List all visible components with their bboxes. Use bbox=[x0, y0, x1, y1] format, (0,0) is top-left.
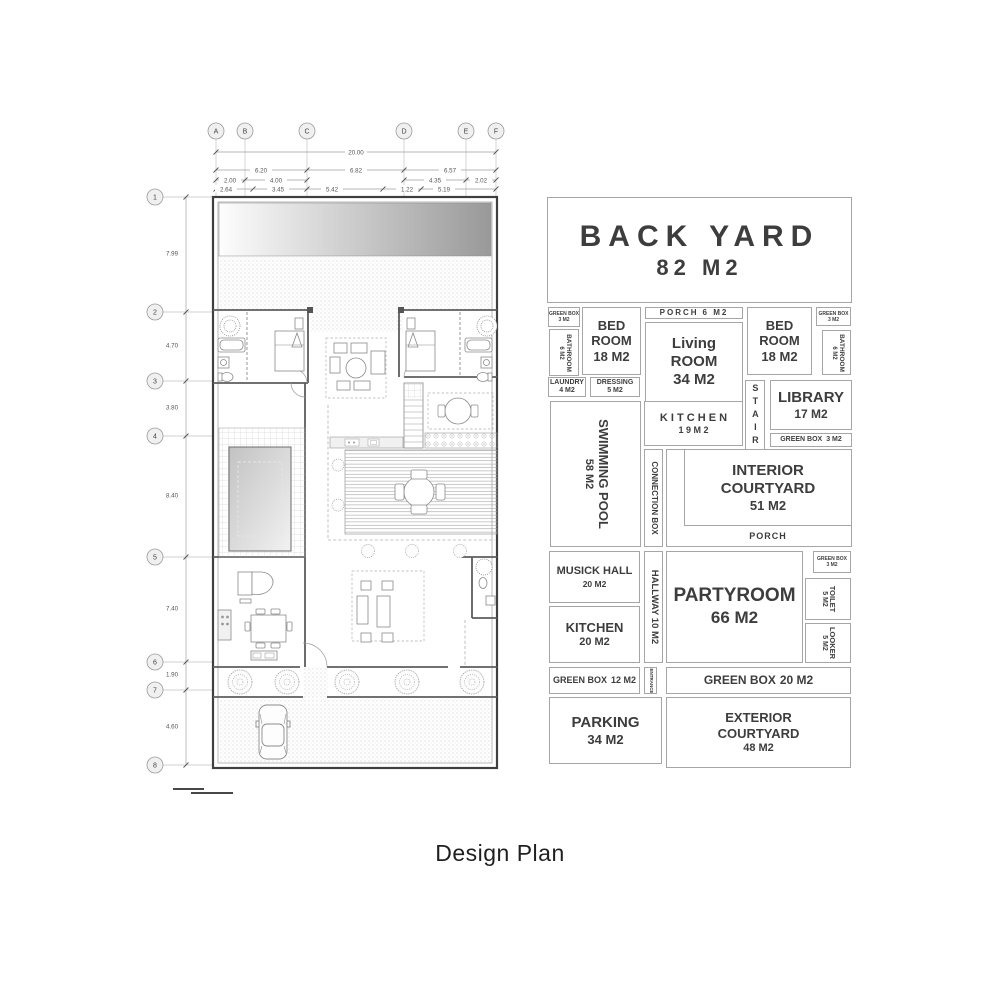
entrance-walkway-gravel bbox=[304, 667, 328, 698]
room-name: SWIMMING POOL bbox=[594, 419, 610, 529]
room-schedule-diagram: BACK YARD 82 M2 GREEN BOX 3 M2 BED ROOM … bbox=[545, 195, 855, 773]
sink-icon bbox=[481, 357, 492, 368]
room-area: 5 M2 bbox=[819, 627, 828, 659]
plant-icon bbox=[224, 320, 236, 332]
toilet-icon bbox=[221, 373, 233, 382]
porch-gravel bbox=[310, 310, 403, 332]
room-area: 82 M2 bbox=[656, 255, 742, 281]
dim-label: 6.82 bbox=[350, 167, 363, 174]
room-name: DRESSING bbox=[597, 379, 634, 387]
kitchen-island bbox=[251, 651, 277, 660]
room-porch-top: PORCH 6 M2 bbox=[645, 307, 743, 319]
floor-plan-drawing: A B C D E F 1 2 3 4 5 6 7 8 20.00 6.20 6… bbox=[130, 115, 520, 805]
room-area: 12 M2 bbox=[611, 675, 636, 686]
room-name: BACK YARD bbox=[580, 219, 820, 255]
kitchen-counter-upper bbox=[330, 437, 403, 448]
room-name: Living ROOM bbox=[663, 335, 725, 371]
room-back-yard: BACK YARD 82 M2 bbox=[547, 197, 852, 303]
grid-col-label: B bbox=[243, 129, 248, 136]
room-area: 18 M2 bbox=[593, 349, 629, 365]
room-area: 34 M2 bbox=[587, 732, 623, 748]
room-area: 4 M2 bbox=[559, 387, 575, 395]
room-hallway: HALLWAY 10 M2 bbox=[644, 551, 663, 663]
room-area: 20 M2 bbox=[780, 673, 813, 687]
room-entrance: ENTRANCE bbox=[644, 667, 657, 694]
dim-label: 20.00 bbox=[348, 149, 364, 156]
room-name: BATHROOM bbox=[836, 334, 844, 372]
room-stair: STAIR bbox=[745, 380, 765, 450]
room-green-box-12: GREEN BOX 12 M2 bbox=[549, 667, 640, 694]
dim-label: 4.60 bbox=[166, 723, 179, 730]
room-area: 58 M2 bbox=[581, 419, 595, 529]
room-area: 17 M2 bbox=[794, 407, 827, 421]
dim-label: 5.19 bbox=[438, 186, 451, 193]
room-area: 20 M2 bbox=[583, 579, 607, 589]
room-bed-room-right: BED ROOM 18 M2 bbox=[747, 307, 812, 375]
dim-label: 6.20 bbox=[255, 167, 268, 174]
room-toilet: TOILET 5 M2 bbox=[805, 578, 851, 620]
room-name: EXTERIOR COURTYARD bbox=[711, 710, 806, 741]
room-area: 48 M2 bbox=[743, 742, 774, 755]
room-name: LIBRARY bbox=[778, 389, 844, 407]
room-name: TOILET bbox=[828, 586, 837, 613]
room-green-box-top-left: GREEN BOX 3 M2 bbox=[548, 307, 580, 327]
room-musick-hall: MUSICK HALL 20 M2 bbox=[549, 551, 640, 603]
room-area: 18 M2 bbox=[761, 349, 797, 365]
room-interior-courtyard: INTERIOR COURTYARD 51 M2 bbox=[684, 449, 852, 526]
dim-label: 3.45 bbox=[272, 186, 285, 193]
stairs bbox=[404, 383, 423, 448]
room-name: ENTRANCE bbox=[648, 668, 654, 693]
room-area: 3 M2 bbox=[826, 562, 837, 568]
dining-table bbox=[251, 615, 286, 642]
room-area: 34 M2 bbox=[673, 371, 715, 389]
grid-row-label: 7 bbox=[153, 688, 157, 695]
room-name: BED ROOM bbox=[755, 318, 805, 349]
deck-area bbox=[345, 450, 497, 534]
grid-row-label: 8 bbox=[153, 763, 157, 770]
room-name: INTERIOR COURTYARD bbox=[713, 462, 823, 498]
toilet-icon bbox=[477, 373, 489, 382]
swimming-pool-area bbox=[219, 428, 305, 557]
grid-col-label: E bbox=[464, 129, 469, 136]
room-name: LOOKER bbox=[828, 627, 837, 659]
toilet-icon bbox=[479, 578, 487, 589]
design-plan-sheet: A B C D E F 1 2 3 4 5 6 7 8 20.00 6.20 6… bbox=[0, 0, 1000, 1000]
room-area: 3 M2 bbox=[828, 317, 839, 323]
room-name: MUSICK HALL bbox=[557, 565, 633, 578]
room-name: BATHROOM bbox=[564, 334, 572, 372]
room-connection-box: CONNECTION BOX bbox=[644, 449, 663, 547]
room-area: 5 M2 bbox=[819, 586, 828, 613]
planter-green-box bbox=[425, 433, 497, 448]
porch-column bbox=[398, 307, 404, 313]
room-living-room: Living ROOM 34 M2 bbox=[645, 322, 743, 402]
room-bathroom-right: BATHROOM 6 M2 bbox=[822, 330, 851, 375]
room-library: LIBRARY 17 M2 bbox=[770, 380, 852, 430]
room-bed-room-left: BED ROOM 18 M2 bbox=[582, 307, 641, 375]
dim-label: 3.80 bbox=[166, 404, 179, 411]
coffee-table bbox=[346, 358, 366, 378]
room-laundry: LAUNDRY 4 M2 bbox=[548, 377, 586, 397]
room-exterior-courtyard: EXTERIOR COURTYARD 48 M2 bbox=[666, 697, 851, 768]
car-icon bbox=[256, 705, 290, 759]
deck-table bbox=[404, 477, 434, 507]
page-title: Design Plan bbox=[0, 840, 1000, 867]
room-name: CONNECTION BOX bbox=[649, 461, 659, 534]
room-area: 3 M2 bbox=[558, 317, 569, 323]
dim-label: 1.90 bbox=[166, 671, 179, 678]
grid-row-label: 2 bbox=[153, 310, 157, 317]
dim-label: 2.02 bbox=[475, 177, 488, 184]
dim-label: 2.64 bbox=[220, 186, 233, 193]
room-name: GREEN BOX bbox=[704, 673, 776, 687]
room-green-box-top-right: GREEN BOX 3 M2 bbox=[816, 307, 851, 326]
grid-row-label: 6 bbox=[153, 660, 157, 667]
room-name: LAUNDRY bbox=[550, 379, 584, 387]
dim-label: 2.00 bbox=[224, 177, 237, 184]
room-name: KITCHEN bbox=[566, 620, 624, 636]
room-green-box-library: GREEN BOX 3 M2 bbox=[770, 433, 852, 447]
room-bathroom-left: BATHROOM 6 M2 bbox=[549, 329, 579, 376]
dim-label: 6.57 bbox=[444, 167, 457, 174]
grid-row-label: 3 bbox=[153, 379, 157, 386]
room-name: PORCH bbox=[660, 308, 699, 318]
plant-icon bbox=[481, 320, 493, 332]
dim-label: 7.99 bbox=[166, 250, 179, 257]
backyard-gravel-band bbox=[219, 257, 491, 310]
grid-col-label: F bbox=[494, 129, 498, 136]
room-name: PARKING bbox=[571, 714, 639, 732]
grid-col-label: C bbox=[304, 129, 309, 136]
grid-row-label: 1 bbox=[153, 195, 157, 202]
room-area: 6 M2 bbox=[829, 334, 837, 372]
dim-label: 1.22 bbox=[401, 186, 414, 193]
room-area: 3 M2 bbox=[826, 436, 842, 444]
room-swimming-pool: SWIMMING POOL 58 M2 bbox=[550, 401, 641, 547]
room-name: GREEN BOX bbox=[553, 675, 607, 686]
room-green-box-20: GREEN BOX 20 M2 bbox=[666, 667, 851, 694]
grid-col-label: D bbox=[401, 129, 406, 136]
room-area: 20 M2 bbox=[579, 636, 610, 649]
room-name: PARTYROOM bbox=[673, 585, 795, 608]
room-area: 1 9 M 2 bbox=[678, 425, 708, 436]
porch-column bbox=[307, 307, 313, 313]
dim-label: 4.00 bbox=[270, 177, 283, 184]
room-green-box-partyroom: GREEN BOX 3 M2 bbox=[813, 551, 851, 573]
room-partyroom: PARTYROOM 66 M2 bbox=[666, 551, 803, 663]
room-name: GREEN BOX bbox=[780, 436, 822, 444]
room-dressing: DRESSING 5 M2 bbox=[590, 377, 640, 397]
dim-label: 7.40 bbox=[166, 605, 179, 612]
grid-col-label: A bbox=[214, 129, 219, 136]
plant-icon bbox=[476, 559, 492, 575]
scale-bar bbox=[173, 789, 233, 793]
grid-row-label: 4 bbox=[153, 434, 157, 441]
dim-label: 4.35 bbox=[429, 177, 442, 184]
room-name: STAIR bbox=[750, 383, 761, 448]
stove-icon bbox=[218, 610, 231, 640]
dim-label: 4.70 bbox=[166, 342, 179, 349]
room-area: 5 M2 bbox=[607, 387, 623, 395]
room-area: 51 M2 bbox=[750, 498, 786, 514]
sink-icon bbox=[486, 596, 495, 605]
room-name: K I T C H E N bbox=[660, 412, 727, 425]
room-name: BED ROOM bbox=[583, 318, 640, 349]
roof-gradient-band bbox=[219, 203, 491, 256]
room-area: 6 M2 bbox=[703, 308, 729, 318]
room-parking: PARKING 34 M2 bbox=[549, 697, 662, 764]
room-looker: LOOKER 5 M2 bbox=[805, 623, 851, 663]
room-name: PORCH bbox=[749, 531, 787, 542]
room-porch-mid: PORCH bbox=[684, 526, 852, 546]
room-name: HALLWAY 10 M2 bbox=[648, 570, 660, 644]
sink-icon bbox=[218, 357, 229, 368]
grid-row-label: 5 bbox=[153, 555, 157, 562]
dim-label: 5.42 bbox=[326, 186, 339, 193]
room-area: 66 M2 bbox=[711, 608, 758, 628]
dim-label: 8.40 bbox=[166, 492, 179, 499]
room-kitchen-lower: KITCHEN 20 M2 bbox=[549, 606, 640, 663]
room-kitchen-upper: K I T C H E N 1 9 M 2 bbox=[644, 401, 743, 446]
room-area: 6 M2 bbox=[556, 334, 564, 372]
